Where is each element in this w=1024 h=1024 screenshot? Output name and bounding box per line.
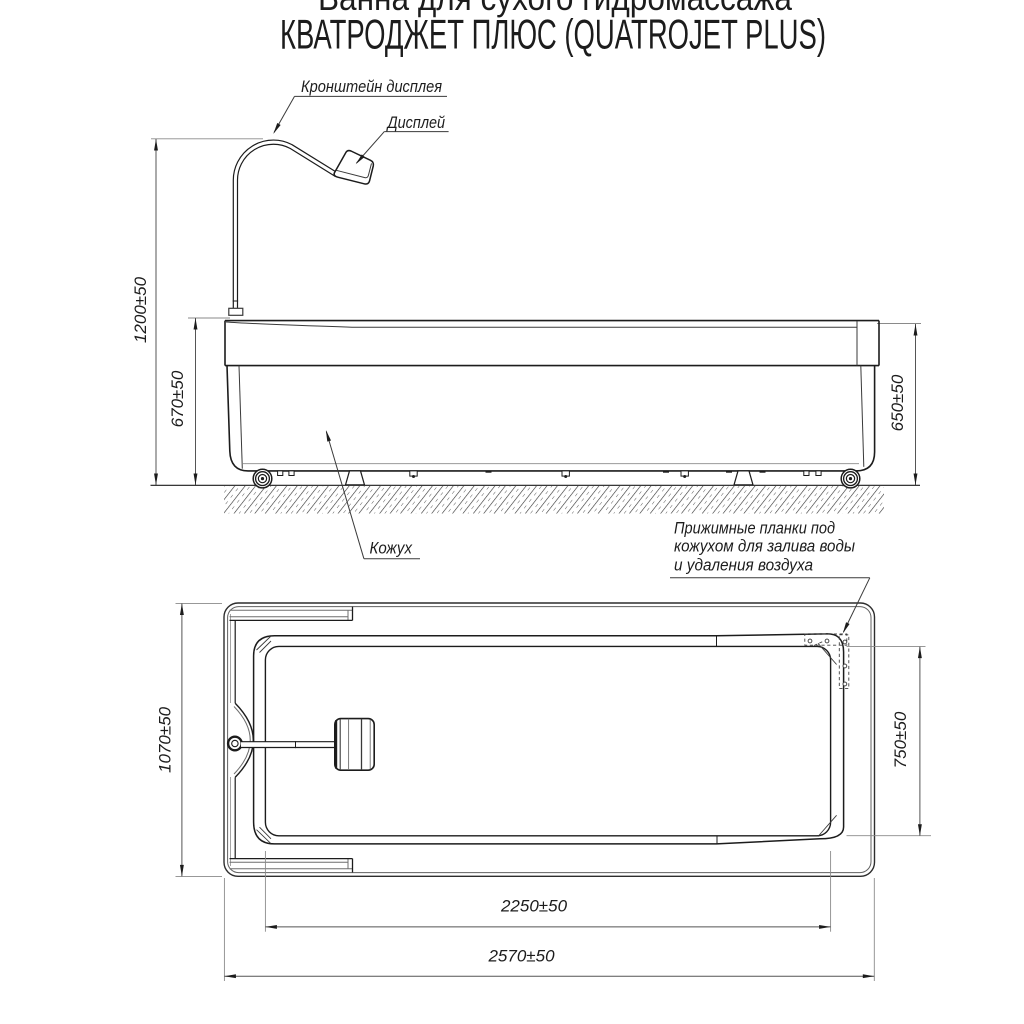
svg-text:кожухом для залива воды: кожухом для залива воды (674, 537, 855, 556)
svg-text:2570±50: 2570±50 (487, 946, 555, 965)
svg-text:750±50: 750±50 (891, 711, 910, 768)
svg-text:Кронштейн дисплея: Кронштейн дисплея (301, 77, 442, 96)
svg-text:1200±50: 1200±50 (131, 276, 150, 343)
svg-text:Прижимные планки под: Прижимные планки под (674, 518, 835, 537)
svg-text:КВАТРОДЖЕТ ПЛЮС (QUATROJET PLU: КВАТРОДЖЕТ ПЛЮС (QUATROJET PLUS) (280, 11, 826, 58)
svg-text:1070±50: 1070±50 (156, 706, 175, 773)
svg-text:2250±50: 2250±50 (500, 897, 568, 916)
svg-text:670±50: 670±50 (168, 370, 187, 427)
svg-text:650±50: 650±50 (888, 374, 907, 431)
svg-text:и удаления воздуха: и удаления воздуха (674, 556, 813, 575)
svg-text:Дисплей: Дисплей (386, 113, 446, 132)
svg-text:Кожух: Кожух (370, 539, 413, 558)
